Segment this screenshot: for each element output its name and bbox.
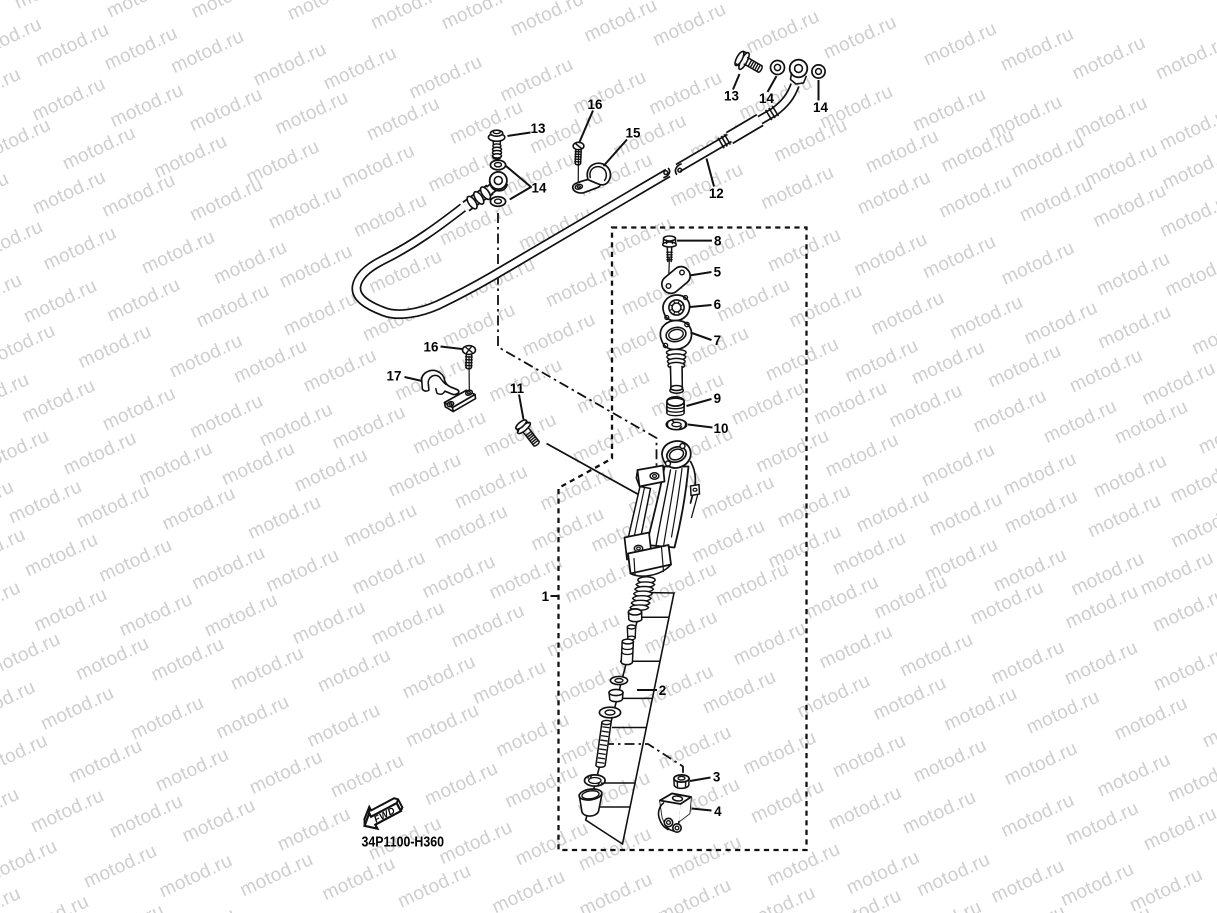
svg-text:7: 7 [714,333,721,348]
svg-text:5: 5 [714,264,722,279]
svg-text:8: 8 [714,233,722,248]
svg-text:17: 17 [387,368,402,383]
svg-text:14: 14 [759,91,774,106]
svg-text:14: 14 [813,100,828,115]
svg-text:6: 6 [714,297,721,312]
svg-text:34P1100-H360: 34P1100-H360 [362,834,445,851]
svg-text:1: 1 [542,589,550,604]
svg-text:16: 16 [588,97,603,112]
svg-text:3: 3 [713,769,720,784]
svg-text:13: 13 [724,88,739,103]
svg-text:10: 10 [714,421,729,436]
svg-text:14: 14 [532,180,547,195]
svg-text:13: 13 [531,121,546,136]
svg-text:9: 9 [714,391,721,406]
svg-text:2: 2 [659,683,666,698]
svg-text:15: 15 [626,125,641,140]
svg-text:11: 11 [510,381,525,396]
svg-text:4: 4 [714,804,722,819]
svg-text:12: 12 [709,186,724,201]
svg-text:16: 16 [424,339,439,354]
